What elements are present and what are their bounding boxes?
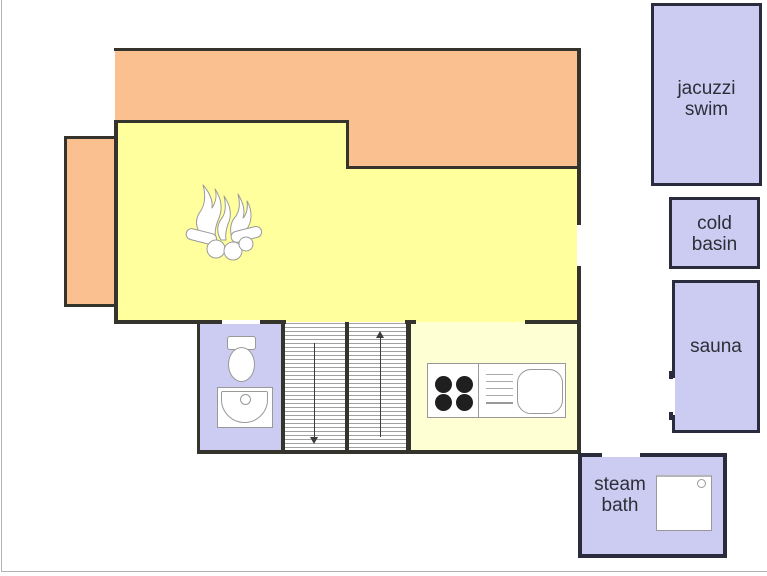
fireplace-icon	[183, 180, 265, 262]
label-line: jacuzzi	[677, 78, 735, 99]
wall-segment	[114, 120, 118, 324]
wall-segment	[577, 48, 581, 225]
stove-burner	[435, 394, 452, 411]
drainboard-line	[486, 388, 513, 389]
wall-segment	[114, 48, 581, 51]
wall-segment	[577, 266, 581, 454]
label-line: bath	[602, 495, 639, 516]
left-orange-annex	[66, 139, 115, 305]
sauna-door-jamb	[669, 371, 673, 379]
upper-orange-notch	[348, 122, 577, 167]
stove-burner	[456, 376, 473, 393]
drainboard-icon	[486, 374, 513, 375]
wall-segment	[640, 453, 727, 457]
drainboard-line	[486, 395, 513, 396]
stair-flight-right	[349, 323, 406, 451]
label-line: sauna	[690, 336, 742, 357]
wall-segment	[672, 430, 760, 433]
label-line: basin	[692, 234, 737, 255]
drainboard-line	[486, 402, 513, 404]
label-line: swim	[685, 99, 728, 120]
page-edge-bottom	[1, 571, 767, 572]
upper-orange-area	[115, 49, 577, 122]
wall-segment	[64, 136, 116, 139]
wall-segment	[723, 453, 727, 558]
wall-segment	[672, 280, 675, 378]
room-label-cold-basin: cold basin	[669, 213, 760, 255]
shower-drain	[697, 479, 706, 488]
stair-flight-left	[285, 323, 345, 451]
stairs-down-arrow-icon	[314, 343, 315, 439]
drainboard-line	[486, 381, 513, 382]
room-label-steam-bath: steam bath	[582, 474, 658, 516]
wall-segment	[114, 320, 222, 324]
kitchen-sink-icon	[517, 369, 563, 414]
room-label-jacuzzi-swim: jacuzzi swim	[651, 78, 762, 120]
stove-burner	[456, 394, 473, 411]
label-line: steam	[594, 474, 646, 495]
wall-segment	[197, 320, 200, 454]
stove-burners-icon	[435, 376, 452, 393]
wall-segment	[114, 120, 348, 123]
wall-segment	[346, 166, 581, 169]
wall-segment	[281, 322, 285, 452]
stairs-up-arrowhead	[376, 331, 384, 338]
stairs-up-arrow-icon	[380, 338, 381, 437]
page-edge-left	[1, 0, 2, 572]
room-label-sauna: sauna	[672, 336, 760, 357]
wall-segment	[672, 280, 760, 283]
floor-plan-canvas: jacuzzi swim cold basin sauna steam bath	[0, 0, 767, 576]
washbasin-drain	[240, 394, 251, 405]
stairs-down-arrowhead	[310, 437, 318, 444]
sauna-door-jamb	[669, 412, 673, 420]
wall-segment	[578, 554, 727, 558]
wall-segment	[525, 320, 581, 324]
wall-segment	[346, 120, 349, 168]
label-line: cold	[697, 213, 732, 234]
wall-segment	[64, 304, 116, 307]
wall-segment	[406, 322, 411, 452]
kitchen-unit-divider	[478, 363, 479, 418]
wall-segment	[64, 136, 67, 307]
toilet-bowl	[228, 347, 255, 382]
bathroom-door-opening	[222, 320, 260, 324]
wall-segment	[197, 450, 581, 454]
wall-segment	[345, 322, 349, 452]
